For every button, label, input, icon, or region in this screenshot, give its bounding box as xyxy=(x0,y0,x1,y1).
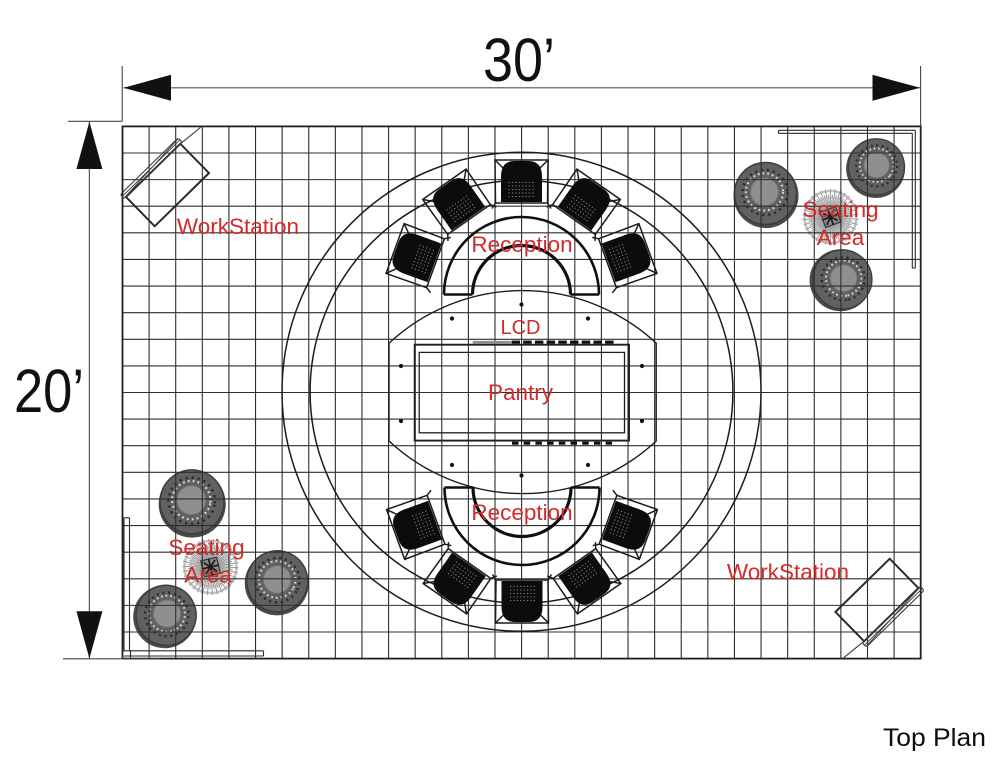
svg-text:Seating: Seating xyxy=(168,535,244,560)
svg-text:LCD: LCD xyxy=(500,317,540,339)
svg-text:Reception: Reception xyxy=(471,500,572,525)
svg-text:WorkStation: WorkStation xyxy=(727,560,849,585)
svg-text:Seating: Seating xyxy=(802,197,878,222)
svg-text:20’: 20’ xyxy=(14,357,84,425)
svg-text:WorkStation: WorkStation xyxy=(177,214,299,239)
svg-text:Area: Area xyxy=(184,563,232,588)
svg-text:Top Plan: Top Plan xyxy=(883,724,986,752)
svg-text:Area: Area xyxy=(817,225,865,250)
svg-text:Pantry: Pantry xyxy=(488,380,554,405)
svg-text:Reception: Reception xyxy=(471,232,572,257)
svg-text:30’: 30’ xyxy=(483,26,555,94)
